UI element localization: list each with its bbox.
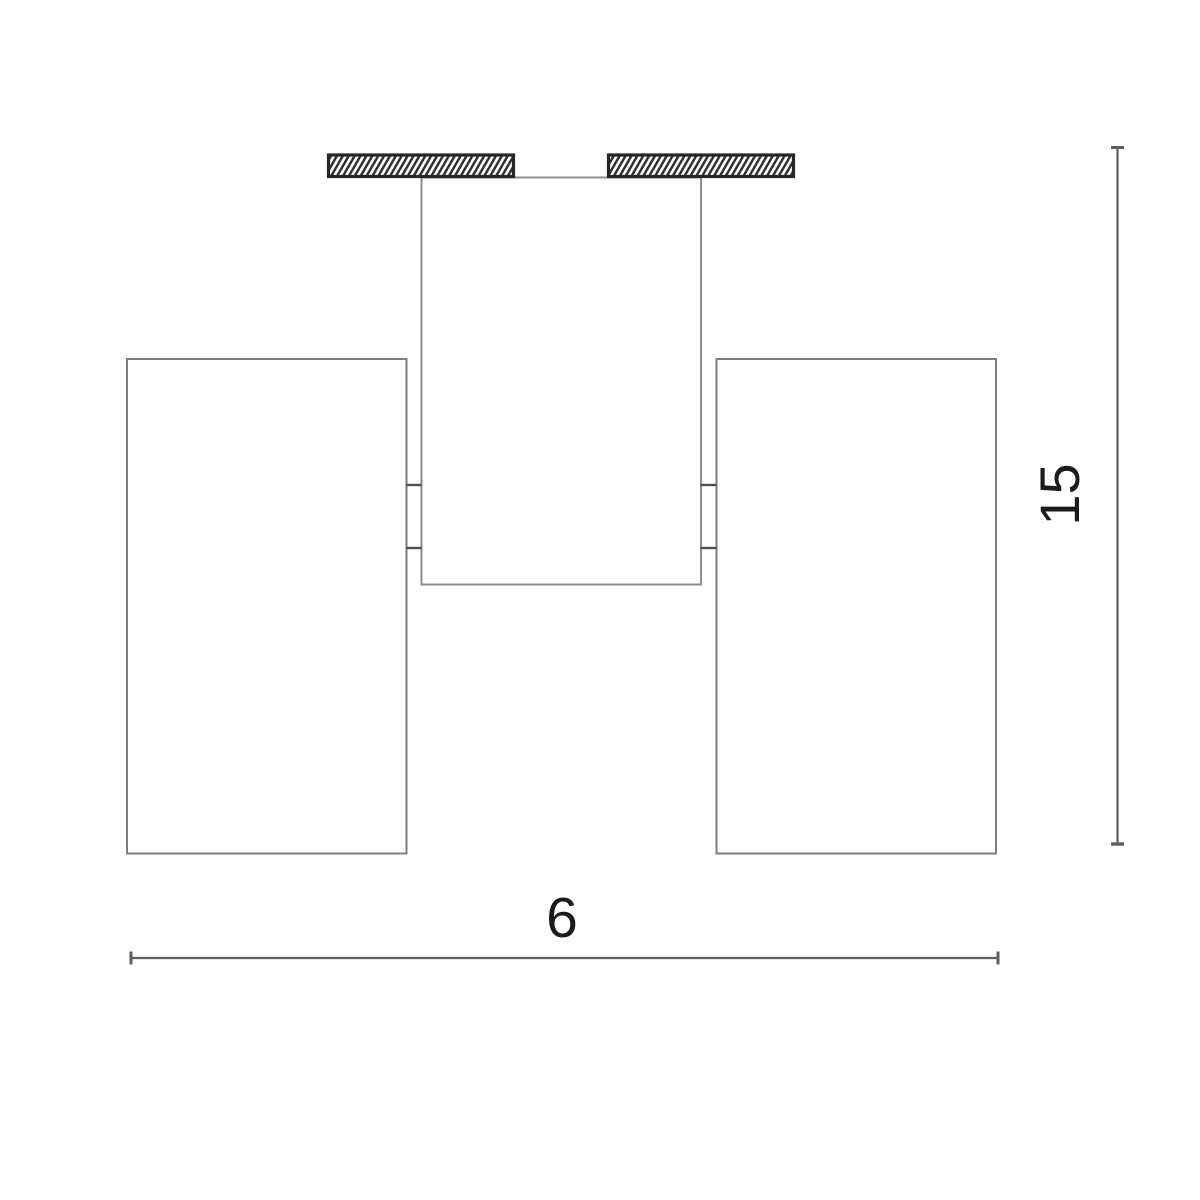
svg-text:6: 6 xyxy=(546,886,578,950)
svg-text:15: 15 xyxy=(1028,463,1091,525)
